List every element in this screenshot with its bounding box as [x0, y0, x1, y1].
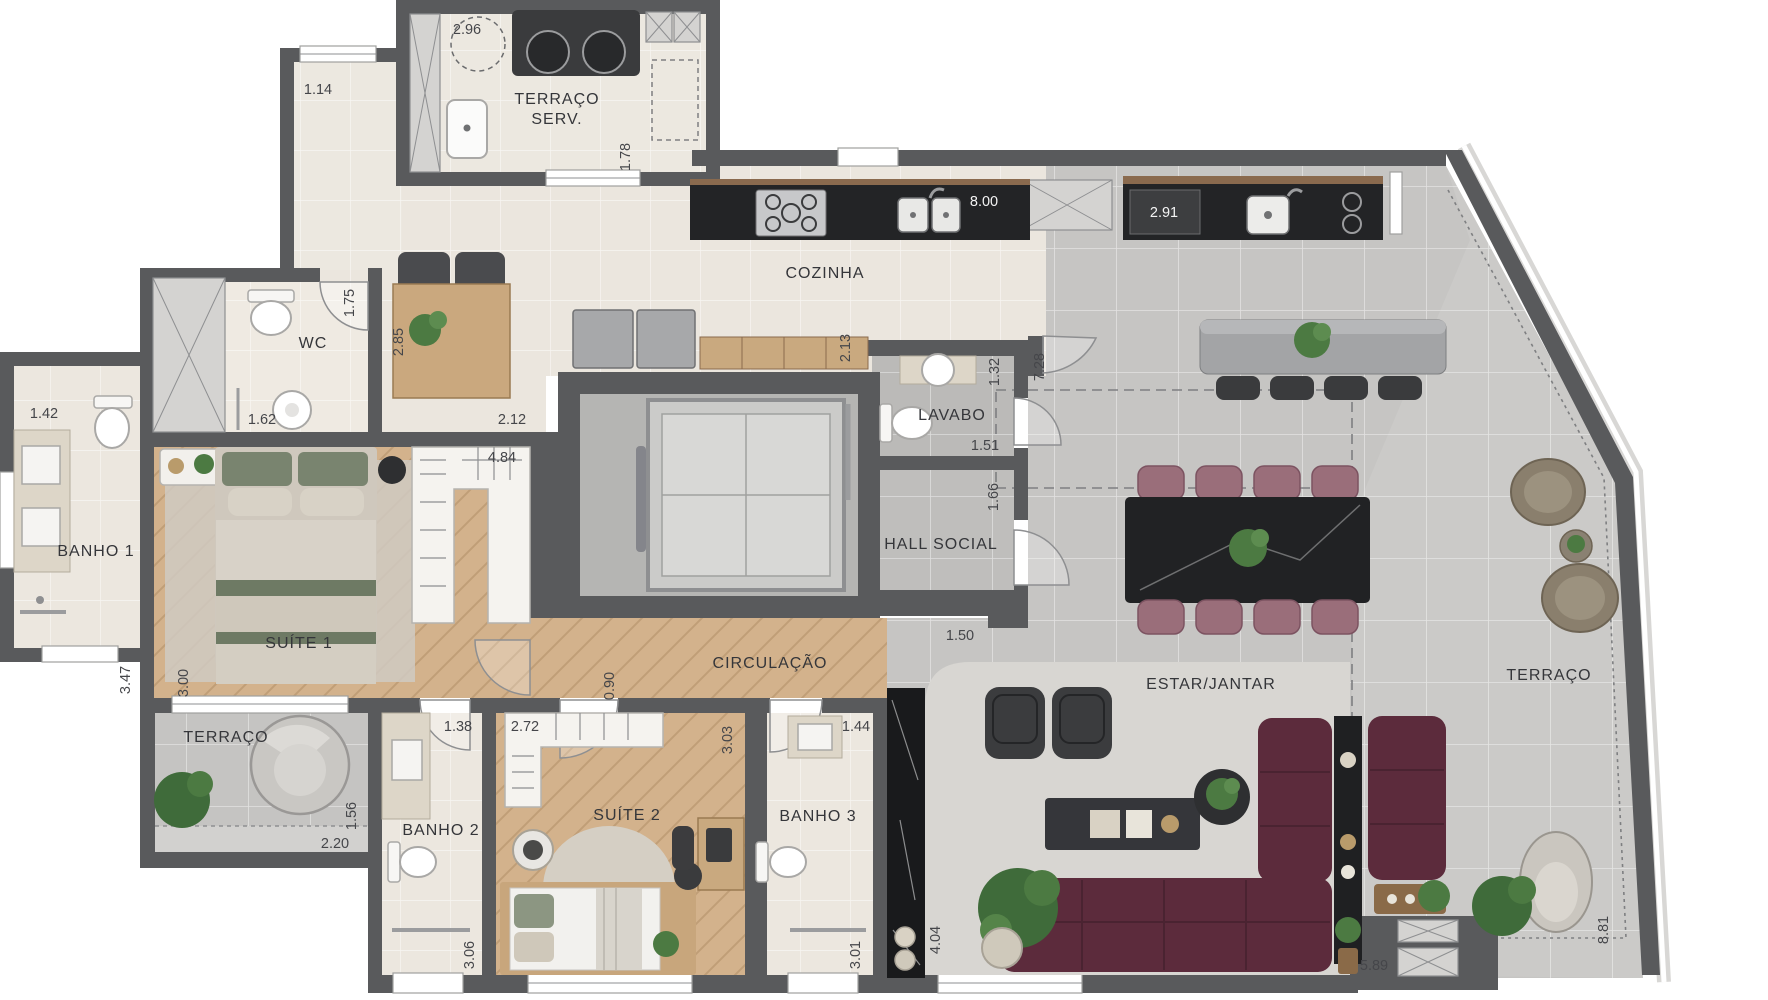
dim-4-84: 4.84: [488, 450, 516, 466]
dim-2-20: 2.20: [321, 836, 349, 852]
floor-plan: TERRAÇO SERV. COZINHA WC LAVABO HALL SOC…: [0, 0, 1768, 1000]
dim-2-96: 2.96: [453, 22, 481, 38]
dim-2-72: 2.72: [511, 719, 539, 735]
dim-0-90: 0.90: [602, 672, 618, 700]
dim-2-13: 2.13: [838, 334, 854, 362]
dim-2-12: 2.12: [498, 412, 526, 428]
label-wc: WC: [299, 335, 328, 352]
dim-8-00: 8.00: [970, 194, 998, 210]
label-banho2: BANHO 2: [402, 822, 479, 839]
plant-icon: [1567, 535, 1585, 553]
label-banho3: BANHO 3: [779, 808, 856, 825]
label-suite2: SUÍTE 2: [593, 805, 660, 824]
dim-3-03: 3.03: [720, 726, 736, 754]
suite2-bed: [500, 882, 696, 975]
label-terraco-serv: TERRAÇO: [514, 91, 599, 108]
dim-1-42: 1.42: [30, 406, 58, 422]
suite2-armchair: [672, 826, 694, 870]
label-terraco-serv2: SERV.: [531, 111, 582, 128]
label-suite1: SUÍTE 1: [265, 633, 332, 652]
pendant-lamp: [378, 456, 406, 484]
plant-icon: [653, 931, 679, 957]
dim-1-75: 1.75: [342, 289, 358, 317]
dim-1-44: 1.44: [842, 719, 870, 735]
dim-1-66: 1.66: [986, 483, 1002, 511]
dim-4-04: 4.04: [928, 926, 944, 954]
dim-1-51: 1.51: [971, 438, 999, 454]
dim-2-85: 2.85: [391, 328, 407, 356]
sofa-right: [1368, 716, 1446, 880]
dim-7-28: 7.28: [1032, 353, 1048, 381]
plant-icon: [194, 454, 214, 474]
floor-plan-drawing: TERRAÇO SERV. COZINHA WC LAVABO HALL SOC…: [0, 0, 1768, 1000]
dim-5-89: 5.89: [1360, 958, 1388, 974]
round-table: [982, 928, 1022, 968]
plant-icon: [1335, 917, 1361, 943]
label-hall-social: HALL SOCIAL: [884, 536, 998, 553]
dim-3-47: 3.47: [118, 666, 134, 694]
dim-2-91: 2.91: [1150, 205, 1178, 221]
dim-1-32: 1.32: [987, 358, 1003, 386]
dim-1-50: 1.50: [946, 628, 974, 644]
label-circulacao: CIRCULAÇÃO: [713, 652, 828, 672]
elevator-door: [636, 446, 646, 552]
plant-icon: [1418, 880, 1450, 912]
dim-1-56: 1.56: [344, 802, 360, 830]
tv-marble-wall: [887, 688, 925, 978]
cooktop-icon: [756, 190, 826, 236]
dim-3-06: 3.06: [462, 941, 478, 969]
sofa-l-vertical: [1258, 718, 1332, 882]
dim-1-78: 1.78: [618, 143, 634, 171]
label-terraco-esq: TERRAÇO: [183, 729, 268, 746]
dim-1-38: 1.38: [444, 719, 472, 735]
dim-1-62: 1.62: [248, 412, 276, 428]
dim-1-14: 1.14: [304, 82, 332, 98]
dim-3-01: 3.01: [848, 941, 864, 969]
dim-8-81: 8.81: [1596, 916, 1612, 944]
elevator: [558, 372, 880, 618]
label-banho1: BANHO 1: [57, 543, 134, 560]
label-terraco-dir: TERRAÇO: [1506, 667, 1591, 684]
dim-3-00: 3.00: [176, 669, 192, 697]
label-lavabo: LAVABO: [918, 407, 986, 424]
label-cozinha: COZINHA: [786, 265, 865, 282]
label-estar-jantar: ESTAR/JANTAR: [1146, 676, 1276, 693]
